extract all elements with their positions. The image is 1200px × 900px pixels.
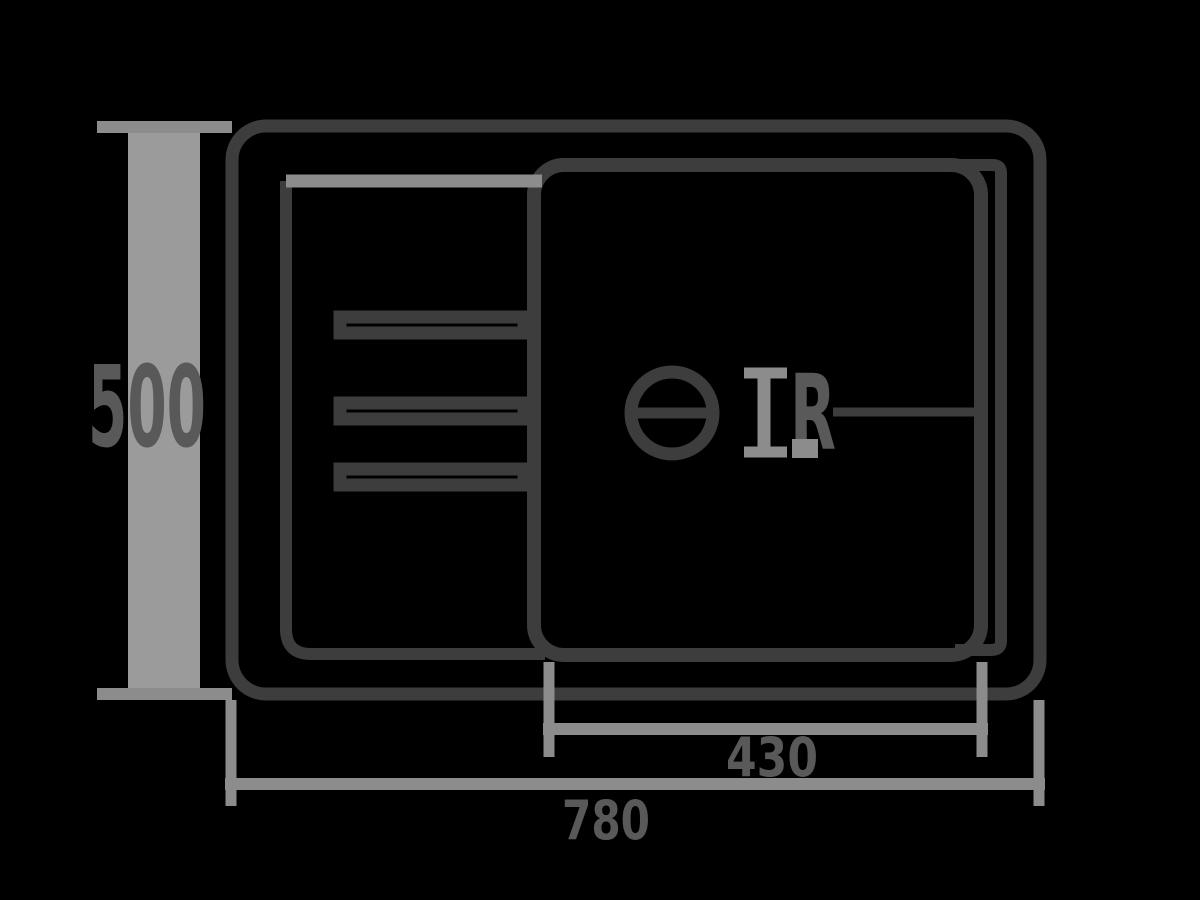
drainboard-slat-1 (340, 317, 524, 333)
drainboard-slat-3 (340, 469, 524, 485)
radius-callout: R (790, 352, 975, 474)
sink-body: R (232, 126, 1040, 694)
overall-width-label: 780 (562, 789, 650, 852)
depth-dimension: 500 (88, 127, 232, 694)
faucet-hole-marker (744, 373, 787, 452)
depth-label: 500 (88, 343, 206, 473)
technical-drawing: R 500 430 780 (0, 0, 1200, 900)
overall-width-dimension: 780 (225, 700, 1045, 852)
radius-label-tick (792, 439, 818, 458)
drainboard-slats (340, 317, 524, 485)
bowl-width-dimension: 430 (543, 662, 988, 789)
drainboard-slat-2 (340, 403, 524, 419)
sink-dimension-diagram: R 500 430 780 (0, 0, 1200, 900)
